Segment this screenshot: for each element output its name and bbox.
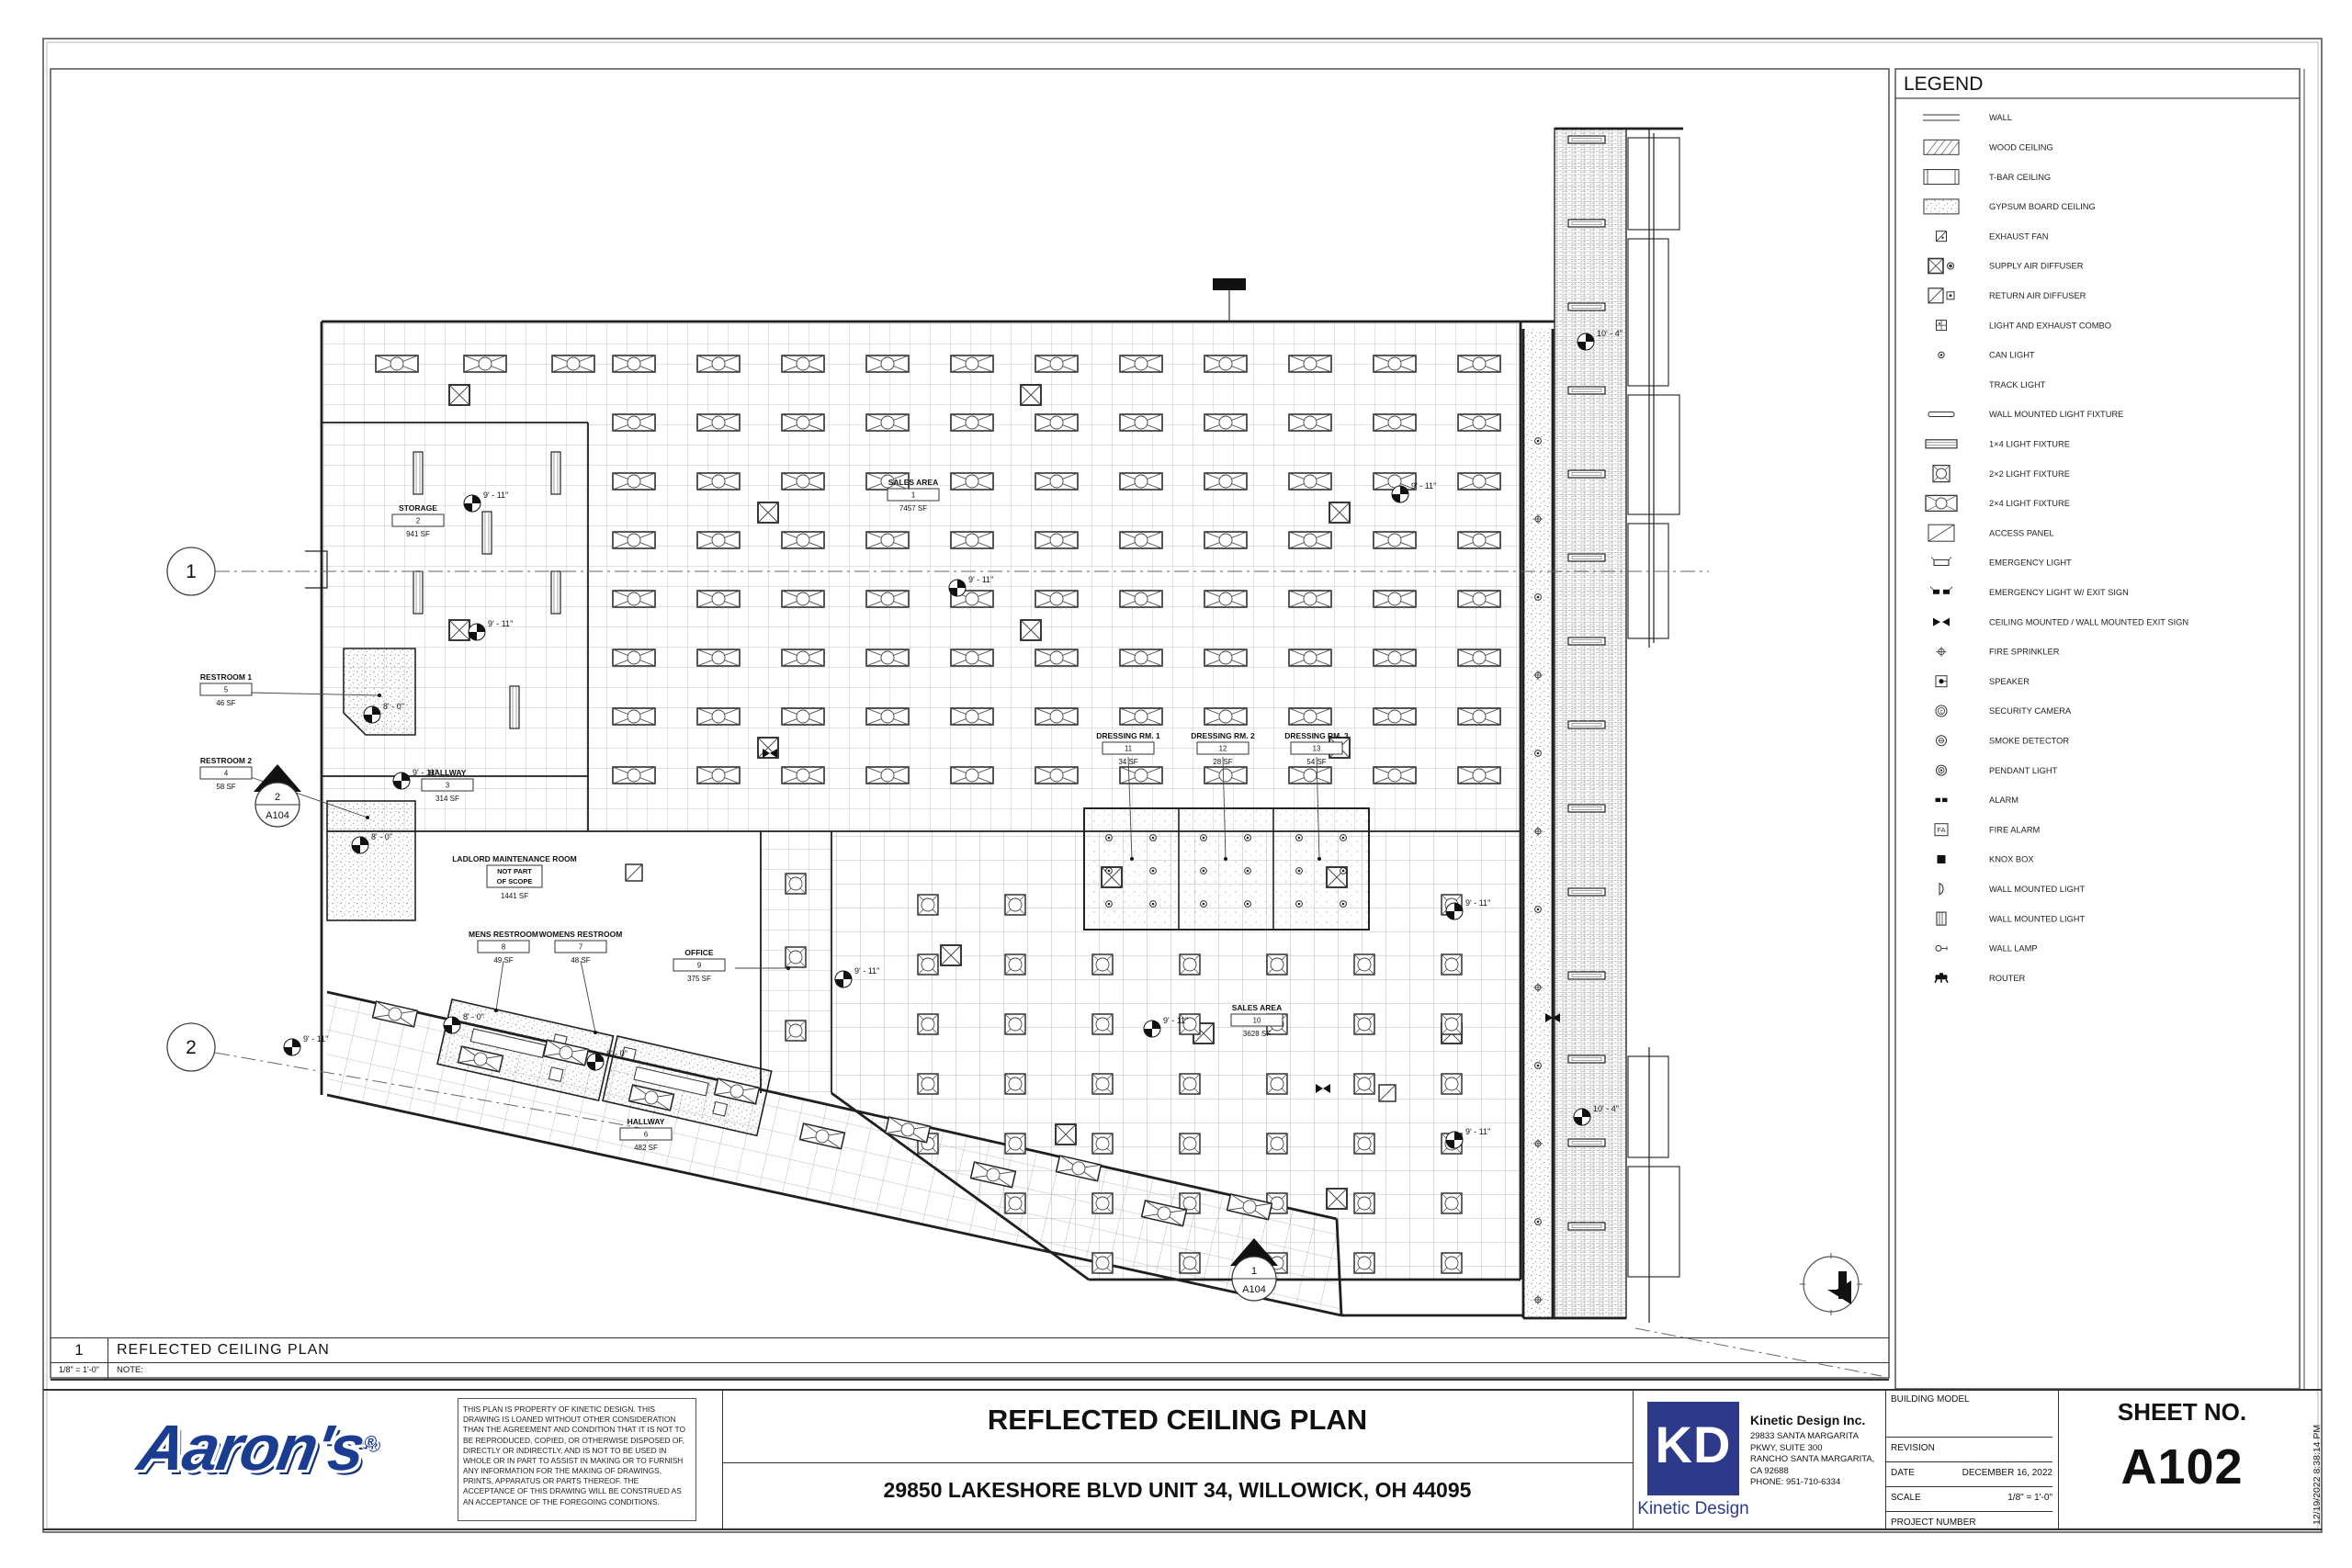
f24-fixture	[1289, 708, 1331, 725]
room-area: 49 SF	[493, 956, 513, 964]
legend-item: WALL MOUNTED LIGHT FIXTURE	[1928, 410, 2123, 419]
room-number: 12	[1219, 745, 1227, 753]
f24-fixture	[1035, 591, 1078, 607]
f24-fixture	[697, 532, 740, 548]
can-light-icon	[1939, 352, 1944, 357]
f24-fixture	[782, 708, 824, 725]
sqx-fixture	[758, 502, 778, 523]
wall-mounted-light-a-icon	[1939, 884, 1943, 895]
can-fixture	[1245, 901, 1251, 908]
can-fixture	[1201, 868, 1207, 874]
height-value: 9' - 11"	[413, 768, 437, 777]
f24-fixture	[1120, 473, 1162, 490]
router-icon	[1935, 973, 1948, 983]
f22-fixture	[918, 954, 938, 975]
legend-item-label: EXHAUST FAN	[1989, 231, 2048, 241]
room-number: 4	[224, 770, 229, 778]
f24-fixture	[866, 767, 909, 784]
f24-fixture	[1035, 532, 1078, 548]
room-area: 48 SF	[571, 956, 590, 964]
f22-fixture	[1092, 1193, 1113, 1213]
f24-fixture	[782, 473, 824, 490]
legend-panel: LEGEND WALLWOOD CEILINGT-BAR CEILINGGYPS…	[1895, 73, 2300, 983]
f24-fixture	[613, 473, 655, 490]
legend-item-label: ALARM	[1989, 795, 2018, 805]
f24-fixture	[782, 414, 824, 431]
f24-fixture	[1204, 532, 1247, 548]
sqx-fixture	[449, 620, 469, 640]
legend-item: FIRE SPRINKLER	[1937, 647, 2060, 657]
f24-fixture	[782, 532, 824, 548]
gypsum-band	[1523, 329, 1553, 1318]
project-number-label: PROJECT NUMBER	[1891, 1517, 1976, 1528]
can-fixture	[1296, 868, 1303, 874]
wbar-fixture	[1568, 721, 1605, 728]
height-target-icon	[1446, 1132, 1463, 1148]
f24-fixture	[1458, 355, 1500, 372]
legend-item-label: WALL	[1989, 113, 2012, 122]
can-fixture	[1201, 835, 1207, 841]
f24-fixture	[613, 708, 655, 725]
f24-fixture	[1120, 532, 1162, 548]
height-target-icon	[284, 1039, 300, 1055]
room-area: 58 SF	[216, 783, 235, 791]
f22-fixture	[1354, 954, 1374, 975]
f22-fixture	[1180, 954, 1200, 975]
legend-item: 1×4 LIGHT FIXTURE	[1926, 440, 2070, 449]
room-number: 8	[502, 943, 505, 952]
can-fixture	[1245, 835, 1251, 841]
f24-fixture	[1035, 414, 1078, 431]
f22-fixture	[1442, 954, 1462, 975]
fire-alarm-icon	[1935, 824, 1948, 836]
height-target-icon	[444, 1017, 460, 1033]
room-name: WOMENS RESTROOM	[539, 930, 623, 939]
f24-fixture	[951, 355, 993, 372]
f24-fixture	[1120, 355, 1162, 372]
1x4-fixture	[510, 686, 519, 728]
aarons-logo: Aaron's®	[53, 1411, 461, 1484]
f24-fixture	[1035, 767, 1078, 784]
project-address: 29850 LAKESHORE BLVD UNIT 34, WILLOWICK,…	[722, 1478, 1633, 1503]
height-target-icon	[364, 706, 380, 723]
legend-item: RETURN AIR DIFFUSER	[1928, 288, 2086, 303]
f22-fixture	[1442, 1074, 1462, 1094]
height-target-icon	[464, 495, 481, 512]
f24-fixture	[866, 649, 909, 666]
can-fixture	[1106, 835, 1113, 841]
can-fixture	[1535, 907, 1542, 913]
legend-item-label: ACCESS PANEL	[1989, 528, 2054, 537]
1x4-fixture	[482, 512, 492, 554]
height-value: 8' - 0"	[463, 1012, 484, 1021]
can-fixture	[1150, 868, 1157, 874]
f22-fixture	[1354, 1253, 1374, 1273]
f24-fixture	[613, 532, 655, 548]
emergency-light-exit-sign-icon	[1930, 587, 1952, 594]
f24-fixture	[1204, 649, 1247, 666]
room-number: 1	[911, 491, 915, 500]
f22-fixture	[1092, 1074, 1113, 1094]
legend-item-label: WALL LAMP	[1989, 944, 2038, 953]
plan-view-scale: 1/8" = 1'-0"	[51, 1365, 107, 1374]
legend-item: WALL LAMP	[1936, 944, 2038, 953]
legend-item: CEILING MOUNTED / WALL MOUNTED EXIT SIGN	[1933, 617, 2188, 626]
height-value: 8' - 0"	[371, 832, 392, 841]
legend-item-label: 1×4 LIGHT FIXTURE	[1989, 440, 2070, 449]
section-number: 2	[275, 792, 280, 803]
wbar-fixture	[1568, 1055, 1605, 1063]
height-target-icon	[587, 1054, 604, 1070]
t-bar-ceiling-icon	[1924, 170, 1959, 185]
legend-item-label: WALL MOUNTED LIGHT	[1989, 914, 2085, 923]
can-fixture	[1296, 901, 1303, 908]
f24-fixture	[376, 355, 418, 372]
firm-address: 29833 SANTA MARGARITA PKWY, SUITE 300 RA…	[1750, 1431, 1874, 1489]
plot-timestamp: 12/19/2022 8:38:14 PM	[2312, 1286, 2330, 1525]
room-area: 482 SF	[634, 1144, 658, 1152]
f22-fixture	[1092, 1134, 1113, 1154]
grid-bubble-label: 2	[186, 1037, 197, 1058]
f22-fixture	[1180, 1134, 1200, 1154]
room-name: LADLORD MAINTENANCE ROOM	[452, 854, 577, 863]
f24-fixture	[1458, 708, 1500, 725]
wbar-fixture	[1568, 220, 1605, 227]
room-name: DRESSING RM. 1	[1096, 731, 1160, 740]
plan-view-title: REFLECTED CEILING PLAN	[117, 1342, 330, 1359]
height-value: 10' - 4"	[1597, 329, 1623, 338]
f24-fixture	[697, 708, 740, 725]
date-value: DECEMBER 16, 2022	[1962, 1468, 2052, 1478]
height-value: 9' - 11"	[854, 966, 879, 976]
f24-fixture	[1458, 414, 1500, 431]
f22-fixture	[1005, 1193, 1025, 1213]
2x4-light-fixture-icon	[1926, 495, 1957, 511]
access-panel-icon	[1928, 525, 1954, 541]
room-number: 9	[697, 962, 701, 970]
room-number: 13	[1313, 745, 1321, 753]
wbar-fixture	[1568, 554, 1605, 561]
legend-item: T-BAR CEILING	[1924, 170, 2051, 185]
legend-item-label: SPEAKER	[1989, 677, 2030, 686]
legend-item-label: ROUTER	[1989, 974, 2026, 983]
f24-fixture	[1289, 355, 1331, 372]
section-number: 1	[1251, 1266, 1257, 1277]
wbar-fixture	[1568, 972, 1605, 979]
room-tag: WOMENS RESTROOM748 SF	[539, 930, 623, 1034]
grid-bubble: 1	[167, 547, 215, 595]
f22-fixture	[1180, 1074, 1200, 1094]
f24-fixture	[1458, 591, 1500, 607]
legend-item-label: TRACK LIGHT	[1989, 380, 2046, 389]
legend-item: WALL MOUNTED LIGHT	[1939, 884, 2085, 895]
section-sheet-ref: A104	[266, 810, 289, 821]
wbar-fixture	[1568, 136, 1605, 143]
f24-fixture	[866, 532, 909, 548]
f24-fixture	[1374, 649, 1416, 666]
f24-fixture	[1035, 355, 1078, 372]
room-number: 7	[579, 943, 582, 952]
f24-fixture	[1289, 532, 1331, 548]
f22-fixture	[1005, 1074, 1025, 1094]
height-value: 9' - 11"	[483, 491, 508, 500]
knox-box-icon	[1938, 855, 1946, 863]
f24-fixture	[1204, 414, 1247, 431]
supply-air-diffuser-icon	[1928, 259, 1954, 274]
return-air-diffuser-icon	[1928, 288, 1954, 303]
room-name: SALES AREA	[1232, 1003, 1282, 1012]
wbar-fixture	[1568, 1223, 1605, 1230]
height-target-icon	[1574, 1109, 1590, 1125]
f22-fixture	[786, 874, 806, 894]
legend-item: WALL MOUNTED LIGHT	[1937, 912, 2085, 925]
alarm-icon	[1936, 798, 1948, 802]
f24-fixture	[1458, 767, 1500, 784]
wbar-fixture	[1568, 1139, 1605, 1146]
f24-fixture	[1289, 767, 1331, 784]
plan-note-label: NOTE:	[117, 1365, 143, 1375]
legend-item: EXHAUST FAN	[1937, 231, 2049, 242]
room-name: DRESSING RM. 3	[1284, 731, 1349, 740]
f22-fixture	[786, 1021, 806, 1041]
date-label: DATE	[1891, 1468, 1915, 1478]
room-name: RESTROOM 1	[200, 672, 252, 682]
f22-fixture	[1092, 954, 1113, 975]
f24-fixture	[1374, 355, 1416, 372]
room-area: 941 SF	[406, 530, 430, 538]
f24-fixture	[1204, 473, 1247, 490]
f24-fixture	[1035, 649, 1078, 666]
room-area: 375 SF	[687, 975, 711, 983]
f22-fixture	[786, 947, 806, 967]
sheet-no-label: SHEET NO.	[2058, 1398, 2306, 1427]
f24-fixture	[951, 708, 993, 725]
f22-fixture	[1005, 895, 1025, 915]
grid-bubble-label: 1	[186, 561, 197, 582]
wbar-fixture	[1568, 387, 1605, 394]
north-arrow	[1800, 1253, 1862, 1315]
room-tag: LADLORD MAINTENANCE ROOMNOT PARTOF SCOPE…	[452, 854, 577, 900]
room-name: HALLWAY	[628, 1117, 665, 1126]
sqd-fixture	[626, 864, 642, 881]
room-area: 34 SF	[1118, 758, 1137, 766]
disclaimer-text: THIS PLAN IS PROPERTY OF KINETIC DESIGN.…	[458, 1398, 696, 1521]
height-target-icon	[469, 624, 485, 640]
legend-item-label: WALL MOUNTED LIGHT FIXTURE	[1989, 410, 2123, 419]
wbar-fixture	[1568, 470, 1605, 478]
f24-fixture	[1374, 473, 1416, 490]
f22-fixture	[1180, 1253, 1200, 1273]
height-value: 9' - 11"	[1411, 481, 1436, 491]
f24-fixture	[1374, 532, 1416, 548]
room-area: 3628 SF	[1243, 1030, 1271, 1038]
room-name: DRESSING RM. 2	[1191, 731, 1255, 740]
smoke-detector-icon	[1937, 736, 1947, 746]
can-fixture	[1535, 438, 1542, 445]
legend-item-label: FIRE SPRINKLER	[1989, 648, 2060, 657]
kd-logo-caption: Kinetic Design	[1629, 1499, 1758, 1519]
legend-item-label: 2×2 LIGHT FIXTURE	[1989, 469, 2070, 479]
height-target-icon	[1392, 486, 1408, 502]
legend-item-label: CEILING MOUNTED / WALL MOUNTED EXIT SIGN	[1989, 617, 2188, 626]
sqx-fixture	[1329, 502, 1350, 523]
f24-fixture	[1374, 708, 1416, 725]
wall-mounted-light-fixture-icon	[1928, 412, 1954, 417]
room-number: 3	[446, 782, 449, 790]
room-number: 10	[1253, 1017, 1261, 1025]
f24-fixture	[697, 414, 740, 431]
1x4-fixture	[551, 571, 560, 614]
f24-fixture	[866, 591, 909, 607]
f22-fixture	[1354, 1014, 1374, 1034]
f24-fixture	[782, 355, 824, 372]
f24-fixture	[697, 355, 740, 372]
f24-fixture	[951, 473, 993, 490]
legend-item: ROUTER	[1935, 973, 2026, 983]
f24-fixture	[1120, 708, 1162, 725]
height-value: 9' - 11"	[1163, 1016, 1188, 1025]
can-fixture	[1106, 901, 1113, 908]
emergency-light-icon	[1931, 558, 1951, 566]
titleblock-strip: Aaron's® THIS PLAN IS PROPERTY OF KINETI…	[43, 1389, 2322, 1530]
f24-fixture	[613, 591, 655, 607]
f24-fixture	[866, 708, 909, 725]
registered-mark: ®	[363, 1433, 379, 1451]
f24-fixture	[1204, 767, 1247, 784]
f22-fixture	[918, 895, 938, 915]
plan-view-number: 1	[51, 1341, 107, 1359]
sheet-no-value: A102	[2058, 1438, 2306, 1495]
f24-fixture	[1120, 591, 1162, 607]
plan-view-titlebar: 1 REFLECTED CEILING PLAN 1/8" = 1'-0" NO…	[51, 1337, 1889, 1381]
legend-item-label: PENDANT LIGHT	[1989, 766, 2058, 775]
legend-item: SPEAKER	[1936, 676, 2030, 687]
legend-item-label: KNOX BOX	[1989, 855, 2034, 864]
kd-logo: KD	[1647, 1402, 1739, 1495]
f24-fixture	[697, 473, 740, 490]
legend-item-label: EMERGENCY LIGHT W/ EXIT SIGN	[1989, 588, 2129, 597]
can-fixture	[1340, 835, 1347, 841]
f24-fixture	[552, 355, 594, 372]
can-fixture	[1150, 835, 1157, 841]
height-value: 9' - 11"	[303, 1034, 328, 1043]
legend-item: KNOX BOX	[1938, 855, 2034, 864]
1x4-fixture	[413, 571, 423, 614]
f24-fixture	[782, 591, 824, 607]
legend-item: FIRE ALARM	[1935, 824, 2040, 836]
legend-item: TRACK LIGHT	[1989, 380, 2046, 389]
height-value: 9' - 11"	[1465, 1127, 1490, 1136]
can-fixture	[1106, 868, 1113, 874]
f24-fixture	[1458, 532, 1500, 548]
room-area: 1441 SF	[501, 892, 528, 900]
room-note: NOT PART	[497, 867, 532, 875]
f24-fixture	[1204, 355, 1247, 372]
reflected-ceiling-plan-drawing: c FA LEGEND WALLWOOD CEILINGT-BAR CEILIN…	[0, 0, 2352, 1568]
legend-item-label: RETURN AIR DIFFUSER	[1989, 291, 2086, 300]
f24-fixture	[782, 649, 824, 666]
legend-item: WALL	[1923, 113, 2012, 122]
f24-fixture	[613, 649, 655, 666]
can-fixture	[1535, 594, 1542, 601]
legend-item: CAN LIGHT	[1939, 351, 2035, 360]
f24-fixture	[1374, 767, 1416, 784]
can-fixture	[1340, 868, 1347, 874]
f24-fixture	[1035, 708, 1078, 725]
height-target-icon	[1144, 1021, 1160, 1037]
legend-item-label: SECURITY CAMERA	[1989, 706, 2072, 716]
f22-fixture	[1354, 1193, 1374, 1213]
can-fixture	[1535, 1063, 1542, 1069]
room-number: 11	[1125, 745, 1132, 753]
legend-item-label: T-BAR CEILING	[1989, 173, 2051, 182]
legend-item: SUPPLY AIR DIFFUSER	[1928, 259, 2084, 274]
f24-fixture	[613, 767, 655, 784]
f22-fixture	[918, 1014, 938, 1034]
can-fixture	[1535, 750, 1542, 757]
sqd-fixture	[1379, 1085, 1396, 1101]
room-number: 5	[224, 686, 229, 694]
f24-fixture	[697, 591, 740, 607]
sqx-fixture	[1056, 1124, 1076, 1145]
room-area: 46 SF	[216, 699, 235, 707]
room-number: 2	[416, 517, 420, 525]
sqx-fixture	[941, 945, 961, 965]
can-fixture	[1201, 901, 1207, 908]
f24-fixture	[613, 355, 655, 372]
room-area: 54 SF	[1306, 758, 1326, 766]
can-fixture	[1150, 901, 1157, 908]
room-area: 314 SF	[435, 795, 459, 803]
f24-fixture	[697, 767, 740, 784]
f24-fixture	[1289, 414, 1331, 431]
legend-item-label: LIGHT AND EXHAUST COMBO	[1989, 321, 2111, 330]
can-fixture	[1296, 835, 1303, 841]
f24-fixture	[951, 414, 993, 431]
light-exhaust-combo-icon	[1937, 321, 1947, 331]
f24-fixture	[1458, 473, 1500, 490]
legend-item-label: EMERGENCY LIGHT	[1989, 558, 2072, 568]
building-model-label: BUILDING MODEL	[1891, 1394, 1970, 1404]
legend-item: LIGHT AND EXHAUST COMBO	[1937, 321, 2111, 331]
can-fixture	[1340, 901, 1347, 908]
f24-fixture	[1458, 649, 1500, 666]
f24-fixture	[464, 355, 506, 372]
sqx-fixture	[1327, 1189, 1347, 1209]
f22-fixture	[918, 1074, 938, 1094]
height-value: 9' - 11"	[1465, 898, 1490, 908]
f22-fixture	[1005, 1014, 1025, 1034]
restroom-2-ceiling	[327, 801, 415, 920]
wall-mounted-light-b-icon	[1937, 912, 1946, 925]
alarm-symbol	[1213, 278, 1246, 321]
f24-fixture	[951, 532, 993, 548]
height-value: 10' - 4"	[1593, 1104, 1619, 1113]
legend-item: GYPSUM BOARD CEILING	[1924, 199, 2096, 214]
legend-item: 2×4 LIGHT FIXTURE	[1926, 495, 2070, 511]
legend-item: 2×2 LIGHT FIXTURE	[1933, 466, 2070, 482]
titleblock-fields: BUILDING MODEL REVISION DATE DECEMBER 16…	[1885, 1391, 2058, 1529]
sqx-fixture	[449, 385, 469, 405]
2x2-light-fixture-icon	[1933, 466, 1950, 482]
legend-item-label: 2×4 LIGHT FIXTURE	[1989, 499, 2070, 508]
gypsum-board-ceiling-icon	[1924, 199, 1959, 214]
wbar-fixture	[1568, 637, 1605, 645]
pendant-light-icon	[1937, 765, 1947, 775]
f22-fixture	[1442, 1193, 1462, 1213]
legend-item-label: CAN LIGHT	[1989, 351, 2035, 360]
restroom-1-ceiling	[344, 649, 415, 735]
